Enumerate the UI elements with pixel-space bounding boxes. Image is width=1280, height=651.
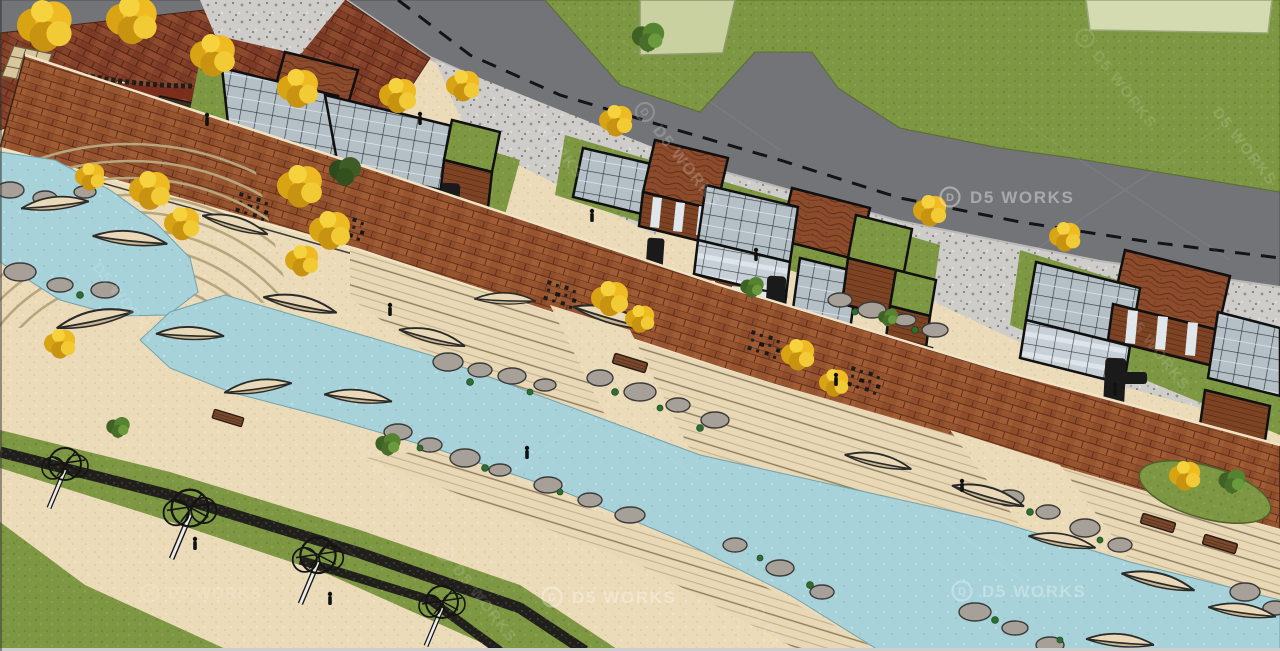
platform-pad-2 xyxy=(1086,0,1272,33)
watermark-text: D5 WORKS xyxy=(982,582,1086,601)
watermark-text: D5 WORKS xyxy=(168,585,262,602)
left-edge-line xyxy=(0,0,2,651)
rendered-scene: D D5 WORKS D D5 WORKS D D5 WORKS D D5 WO… xyxy=(0,0,1280,651)
watermark-logo-icon: D xyxy=(548,592,556,604)
watermark-text: D5 WORKS xyxy=(572,588,676,607)
watermark-logo-icon: D xyxy=(958,586,966,598)
watermark-logo-icon: D xyxy=(946,192,954,204)
watermark-text: D5 WORKS xyxy=(970,188,1074,207)
watermark-logo-icon: D xyxy=(146,589,153,600)
scene-svg: D D5 WORKS D D5 WORKS D D5 WORKS D D5 WO… xyxy=(0,0,1280,651)
